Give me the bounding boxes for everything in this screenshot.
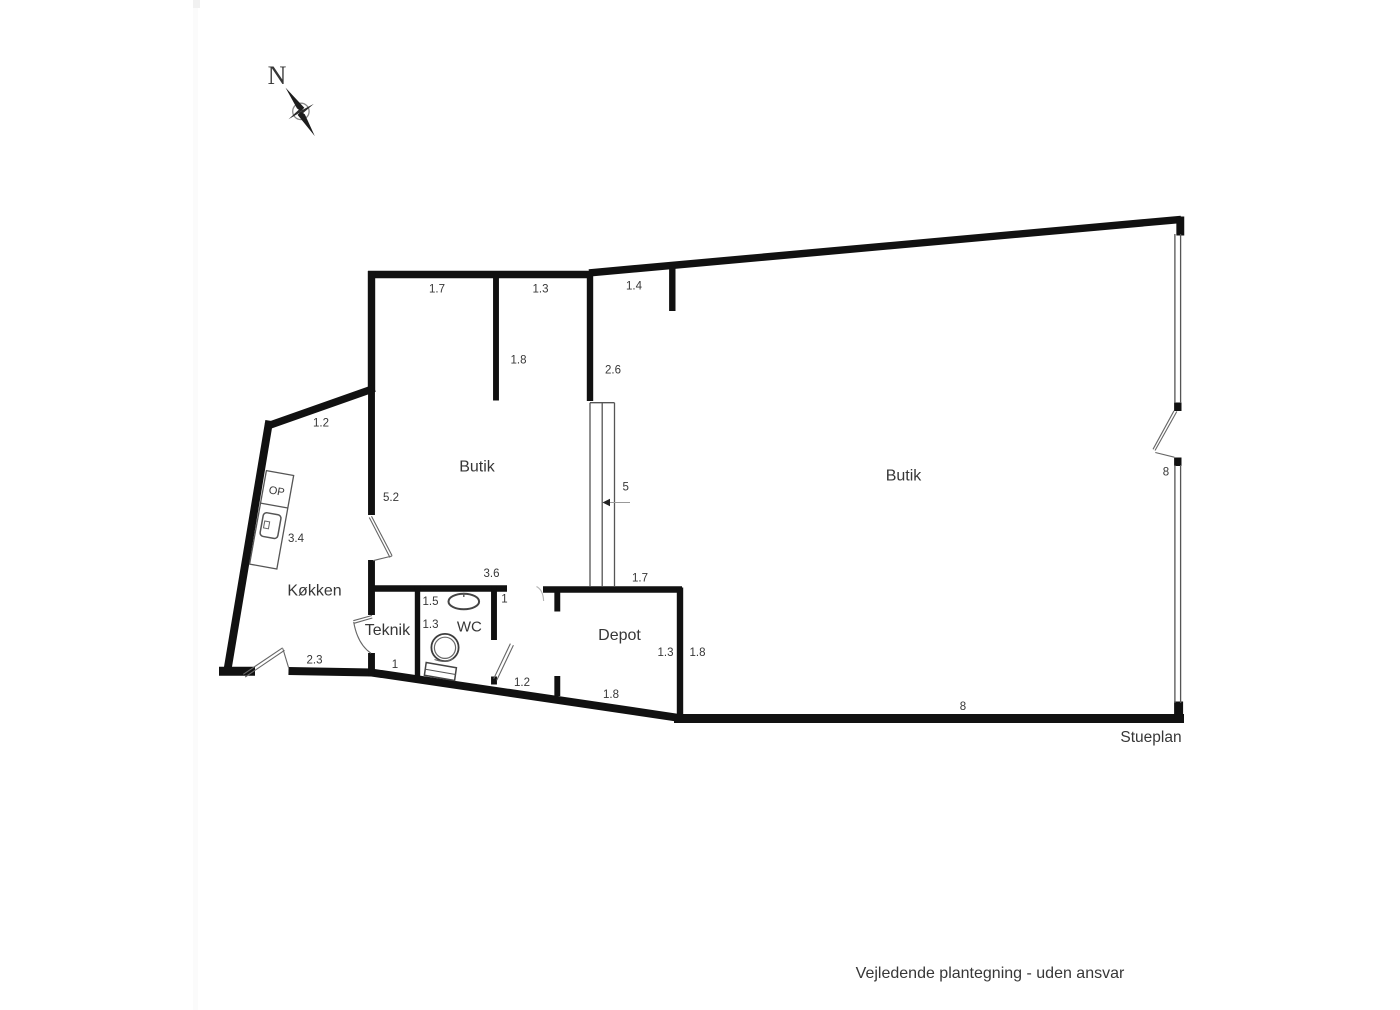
svg-text:Stueplan: Stueplan (1120, 729, 1181, 746)
svg-text:Vejledende plantegning - uden: Vejledende plantegning - uden ansvar (856, 965, 1125, 982)
svg-text:Teknik: Teknik (365, 622, 411, 639)
svg-text:1: 1 (501, 594, 507, 606)
svg-text:5: 5 (623, 482, 629, 494)
svg-text:3.6: 3.6 (484, 568, 500, 580)
svg-text:N: N (268, 61, 287, 90)
svg-text:2.3: 2.3 (307, 655, 323, 667)
svg-text:1.8: 1.8 (511, 355, 527, 367)
svg-text:5.2: 5.2 (383, 492, 399, 504)
svg-text:1.8: 1.8 (603, 689, 619, 701)
svg-text:1.7: 1.7 (429, 284, 445, 296)
svg-text:OP: OP (268, 484, 286, 499)
svg-text:Butik: Butik (459, 459, 496, 476)
svg-text:1.5: 1.5 (423, 596, 439, 608)
svg-text:1.2: 1.2 (514, 677, 530, 689)
svg-text:1.3: 1.3 (658, 647, 674, 659)
svg-text:1.8: 1.8 (690, 647, 706, 659)
svg-text:1.2: 1.2 (313, 418, 329, 430)
svg-text:Depot: Depot (598, 627, 641, 644)
svg-text:Køkken: Køkken (287, 583, 341, 600)
svg-text:WC: WC (457, 619, 482, 636)
svg-text:1.7: 1.7 (632, 573, 648, 585)
svg-text:1: 1 (392, 659, 398, 671)
svg-text:1.3: 1.3 (423, 619, 439, 631)
svg-text:1.3: 1.3 (533, 284, 549, 296)
svg-text:2.6: 2.6 (605, 365, 621, 377)
svg-text:8: 8 (960, 701, 966, 713)
svg-text:1.4: 1.4 (626, 281, 643, 293)
svg-text:8: 8 (1163, 467, 1169, 479)
svg-text:Butik: Butik (886, 468, 923, 485)
svg-text:3.4: 3.4 (288, 533, 305, 545)
